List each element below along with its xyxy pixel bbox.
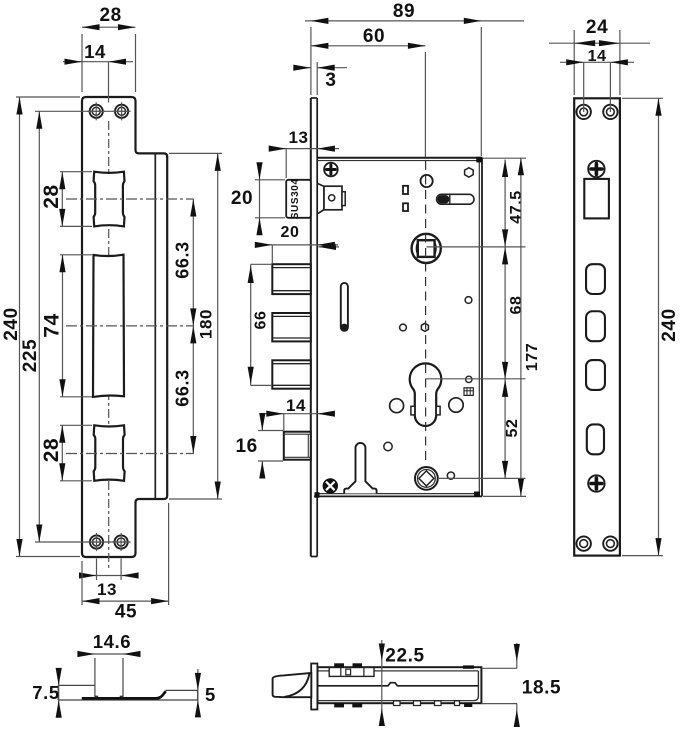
svg-text:66.3: 66.3 bbox=[173, 241, 193, 278]
svg-text:13: 13 bbox=[97, 580, 117, 599]
svg-text:22.5: 22.5 bbox=[385, 645, 424, 666]
svg-text:47.5: 47.5 bbox=[508, 190, 525, 224]
svg-text:16: 16 bbox=[236, 436, 258, 457]
svg-text:60: 60 bbox=[363, 26, 385, 47]
svg-text:SUS304: SUS304 bbox=[290, 178, 301, 219]
svg-text:52: 52 bbox=[504, 419, 521, 438]
svg-text:7.5: 7.5 bbox=[32, 682, 60, 703]
svg-text:14.6: 14.6 bbox=[93, 631, 131, 652]
svg-text:177: 177 bbox=[524, 343, 541, 372]
svg-text:20: 20 bbox=[281, 224, 300, 241]
svg-text:18.5: 18.5 bbox=[522, 677, 561, 698]
svg-text:240: 240 bbox=[1, 307, 22, 341]
svg-text:240: 240 bbox=[659, 308, 680, 342]
svg-text:13: 13 bbox=[288, 128, 308, 147]
svg-text:5: 5 bbox=[205, 684, 216, 705]
svg-text:45: 45 bbox=[115, 602, 137, 623]
svg-text:14: 14 bbox=[286, 396, 306, 415]
svg-text:20: 20 bbox=[231, 188, 253, 209]
svg-text:28: 28 bbox=[40, 438, 63, 463]
svg-text:180: 180 bbox=[197, 309, 216, 339]
svg-text:3: 3 bbox=[325, 70, 336, 91]
svg-text:74: 74 bbox=[41, 313, 64, 338]
svg-text:66.3: 66.3 bbox=[173, 369, 193, 406]
svg-text:89: 89 bbox=[393, 1, 415, 22]
svg-text:66: 66 bbox=[253, 311, 270, 330]
svg-text:14: 14 bbox=[588, 48, 607, 65]
svg-text:28: 28 bbox=[100, 5, 122, 26]
svg-text:28: 28 bbox=[40, 184, 63, 209]
svg-text:68: 68 bbox=[508, 296, 525, 315]
svg-text:24: 24 bbox=[586, 17, 608, 38]
svg-text:14: 14 bbox=[84, 41, 106, 62]
svg-text:225: 225 bbox=[20, 339, 41, 373]
